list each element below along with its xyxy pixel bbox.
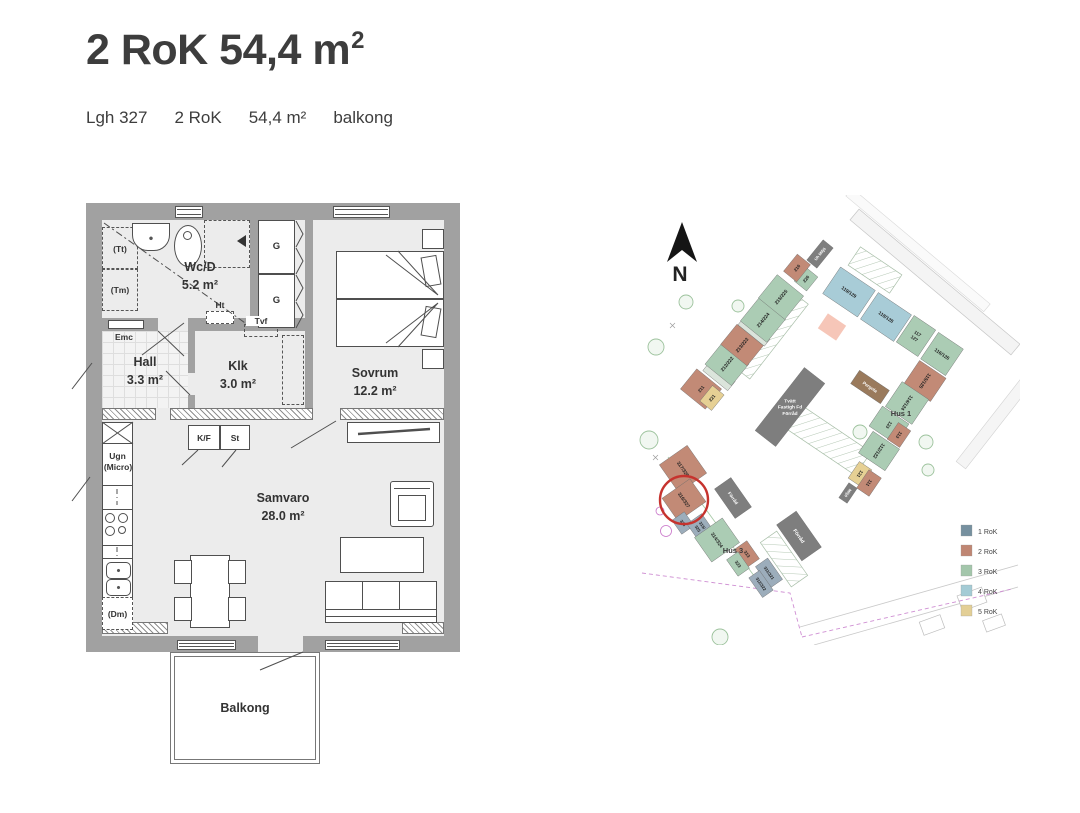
north-label: N: [672, 263, 687, 286]
balcony-inner: Balkong: [174, 656, 316, 760]
siteplan: 211221212/222213/223214/224215/225226216…: [620, 195, 1020, 645]
legend-label: 5 RoK: [978, 609, 998, 616]
legend-label: 2 RoK: [978, 549, 998, 556]
meta-rok: 2 RoK: [174, 108, 221, 128]
klk-shelf: [282, 335, 304, 405]
sofa-back-line: [325, 609, 437, 610]
room-area: 3.3 m²: [127, 371, 163, 389]
label-tt: (Tt): [102, 244, 138, 254]
north-arrow: [667, 222, 697, 262]
siteplan-hus-label: Hus 1: [891, 409, 911, 418]
room-label-sovrum: Sovrum 12.2 m²: [352, 364, 399, 400]
shower-door-icon: [237, 235, 246, 247]
room-area: 5.2 m²: [182, 276, 218, 294]
legend-swatch: [961, 545, 972, 556]
room-area: 28.0 m²: [257, 507, 310, 525]
nightstand-bottom: [422, 349, 444, 369]
window-samvaro-right: [325, 640, 400, 650]
burner-icon: [105, 513, 115, 523]
page-title: 2 RoK 54,4 m2: [86, 26, 364, 75]
sink-bowl-icon: [106, 562, 131, 579]
burner-icon: [118, 513, 128, 523]
balcony: Balkong: [170, 652, 320, 764]
burner-icon: [118, 526, 126, 534]
meta-area: 54,4 m²: [249, 108, 307, 128]
room-label-wcd: Wc/D 5.2 m²: [182, 258, 218, 294]
partition-hatch-mid: [170, 408, 313, 420]
armchair-seat: [398, 495, 426, 521]
siteplan-playground: [818, 313, 846, 340]
window-frame: [335, 209, 388, 215]
dining-chair: [228, 597, 246, 621]
kitchen-counter-gap: [102, 545, 133, 559]
dining-chair: [174, 560, 192, 584]
sill-hatch-bottom-right: [402, 622, 444, 634]
apartment-meta: Lgh 327 2 RoK 54,4 m² balkong: [86, 108, 393, 128]
meta-balkong: balkong: [333, 108, 393, 128]
window-wcd: [175, 206, 203, 218]
label-st: St: [220, 433, 250, 443]
wall-wcd-closet: [250, 220, 258, 331]
burner-icon: [105, 526, 115, 536]
sofa-back-line: [325, 616, 437, 617]
room-name: Sovrum: [352, 364, 399, 382]
ht-box: [206, 311, 234, 324]
label-ht: Ht: [206, 300, 234, 310]
siteplan-svg: 211221212/222213/223214/224215/225226216…: [620, 195, 1020, 645]
emc-cabinet: [108, 320, 144, 329]
room-area: 12.2 m²: [352, 382, 399, 400]
legend-swatch: [961, 565, 972, 576]
room-label-hall: Hall 3.3 m²: [127, 353, 163, 389]
window-frame: [327, 643, 398, 647]
window-frame: [177, 209, 201, 215]
dining-chair: [174, 597, 192, 621]
balcony-label: Balkong: [220, 701, 269, 716]
floorplan: Balkong Wc/D 5.2 m²: [86, 203, 460, 763]
room-name: Klk: [220, 357, 256, 375]
legend-swatch: [961, 585, 972, 596]
legend-swatch: [961, 605, 972, 616]
balcony-door-opening: [258, 636, 303, 652]
legend-swatch: [961, 525, 972, 536]
room-name: Hall: [127, 353, 163, 371]
label-kf: K/F: [188, 433, 220, 443]
label-tvf: Tvf: [246, 316, 276, 326]
legend-label: 1 RoK: [978, 529, 998, 536]
legend-label: 3 RoK: [978, 569, 998, 576]
label-micro: (Micro): [100, 462, 136, 472]
room-area: 3.0 m²: [220, 375, 256, 393]
label-g1: G: [258, 241, 295, 252]
label-emc: Emc: [102, 332, 146, 342]
page-title-sup: 2: [351, 27, 364, 54]
sofa-divider: [362, 581, 363, 609]
wall-closet-sovrum: [305, 220, 313, 331]
page: 2 RoK 54,4 m2 Lgh 327 2 RoK 54,4 m² balk…: [0, 0, 1080, 813]
legend-label: 4 RoK: [978, 589, 998, 596]
room-label-klk: Klk 3.0 m²: [220, 357, 256, 393]
coffee-table: [340, 537, 424, 573]
room-name: Wc/D: [182, 258, 218, 276]
label-dm: (Dm): [102, 609, 133, 619]
kitchen-counter-mid: [102, 485, 133, 510]
toilet-flush: [183, 231, 192, 240]
armchair-back: [394, 488, 430, 489]
kitchen-corner-unit: [102, 422, 133, 444]
nightstand-top: [422, 229, 444, 249]
dining-chair: [228, 560, 246, 584]
wall-hall-klk-a: [188, 331, 195, 373]
room-label-samvaro: Samvaro 28.0 m²: [257, 489, 310, 525]
window-samvaro-left: [177, 640, 236, 650]
partition-hatch-left: [102, 408, 156, 420]
window-sovrum: [333, 206, 390, 218]
label-tm: (Tm): [102, 285, 138, 295]
window-frame: [179, 643, 234, 647]
wall-hall-klk-b: [188, 395, 195, 408]
room-name: Samvaro: [257, 489, 310, 507]
sink-bowl-icon: [106, 579, 131, 596]
dining-table: [190, 555, 230, 628]
page-title-text: 2 RoK 54,4 m: [86, 26, 350, 74]
label-g2: G: [258, 295, 295, 306]
label-ugn: Ugn: [102, 451, 133, 461]
sofa-divider: [399, 581, 400, 609]
meta-lgh: Lgh 327: [86, 108, 147, 128]
partition-hatch-right: [340, 408, 444, 420]
siteplan-hus-label: Hus 3: [723, 546, 743, 555]
wall-klk-sovrum: [305, 331, 313, 408]
tv-bench: [347, 422, 440, 443]
